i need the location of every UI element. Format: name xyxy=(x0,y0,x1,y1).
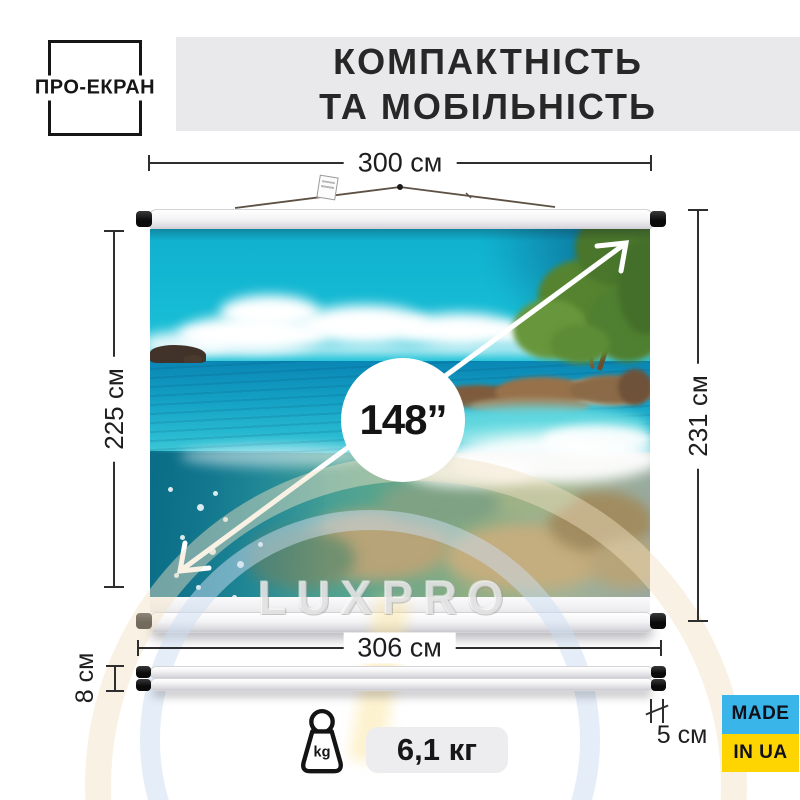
wire-tag xyxy=(316,175,338,201)
tube-end-cap xyxy=(651,679,666,691)
screen-bottom-bar xyxy=(148,612,654,633)
made-in-ua-top: MADE xyxy=(722,695,799,734)
weight-value: 6,1 кг xyxy=(397,732,477,768)
measure-top-width: 300 см xyxy=(148,155,652,171)
measure-screen-height: 225 см xyxy=(99,230,129,588)
measure-total-height: 231 см xyxy=(683,209,713,622)
weight-badge: 6,1 кг xyxy=(366,727,508,773)
measure-bottom-width-label: 306 см xyxy=(343,633,456,664)
diagonal-size-value: 148” xyxy=(359,396,446,444)
diagonal-size-circle: 148” xyxy=(341,358,465,482)
measure-screen-height-label: 225 см xyxy=(99,356,129,461)
brand-logo-frame: ПРО-ЕКРАН xyxy=(48,40,142,136)
measure-rolled-depth-label: 5 см xyxy=(644,721,720,750)
bar-end-cap xyxy=(136,613,152,629)
headline-line2: ТА МОБІЛЬНІСТЬ xyxy=(319,84,657,129)
made-in-ua-badge: MADE IN UA xyxy=(722,695,799,772)
measure-top-width-label: 300 см xyxy=(344,148,457,179)
measure-total-height-label: 231 см xyxy=(683,363,713,468)
made-in-ua-bottom: IN UA xyxy=(722,734,799,773)
bar-end-cap xyxy=(650,613,666,629)
svg-text:kg: kg xyxy=(314,745,331,761)
screen-blank-margin xyxy=(150,597,650,612)
bar-end-cap xyxy=(650,211,666,227)
rolled-tube-rail xyxy=(150,678,654,691)
weight-kg-icon: kg xyxy=(291,707,353,785)
tube-end-cap xyxy=(651,666,666,678)
measure-rolled-height-label: 8 см xyxy=(59,657,111,699)
measure-bottom-width: 306 см xyxy=(137,640,662,656)
screen-canvas-photo: 148” xyxy=(150,229,650,597)
brand-logo-text: ПРО-ЕКРАН xyxy=(32,76,158,101)
headline-line1: КОМПАКТНІСТЬ xyxy=(333,39,643,84)
tube-end-cap xyxy=(136,666,151,678)
headline-banner: КОМПАКТНІСТЬ ТА МОБІЛЬНІСТЬ xyxy=(176,37,800,131)
bar-end-cap xyxy=(136,211,152,227)
screen-top-bar xyxy=(148,209,654,231)
product-infographic: ПРО-ЕКРАН КОМПАКТНІСТЬ ТА МОБІЛЬНІСТЬ 30… xyxy=(0,0,800,800)
tube-end-cap xyxy=(136,679,151,691)
